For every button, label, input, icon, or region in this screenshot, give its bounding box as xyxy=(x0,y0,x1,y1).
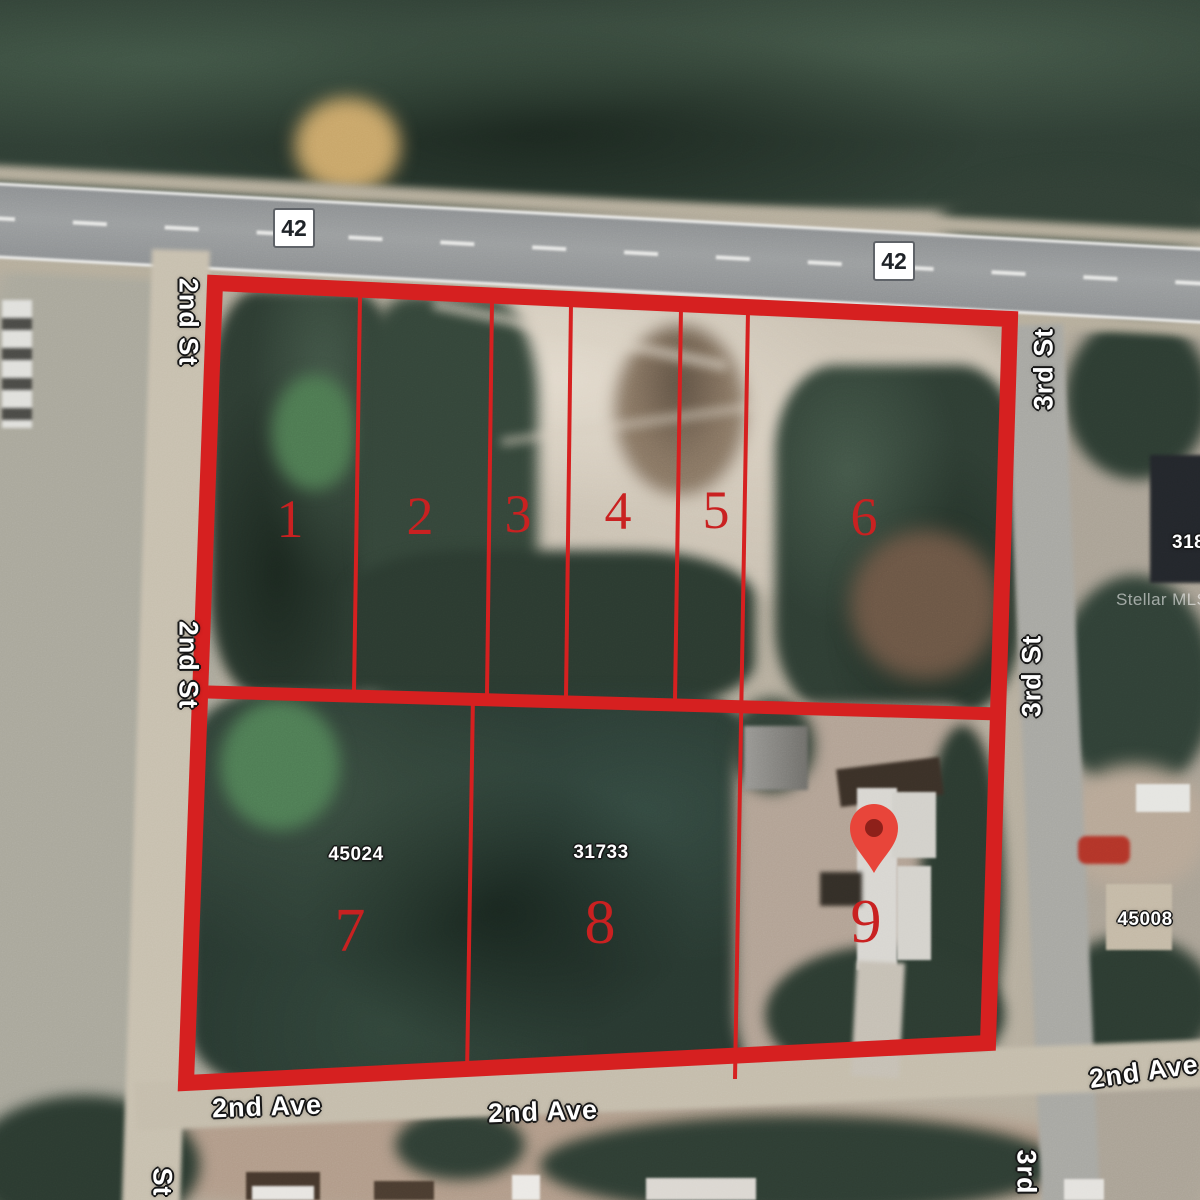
street-label-3rd-partial: 3rd xyxy=(1011,1149,1042,1194)
lot-number-6: 6 xyxy=(851,490,878,544)
terrain-layer xyxy=(0,0,1200,1200)
terrain-green-lot1 xyxy=(272,375,357,490)
parcel-number-45024: 45024 xyxy=(328,844,383,866)
lot-number-7: 7 xyxy=(335,900,366,962)
terrain-brown-lot6 xyxy=(850,530,1000,680)
highway-42-badge: 42 xyxy=(273,208,315,248)
building-house-wing xyxy=(892,792,936,858)
street-label-st-partial: St xyxy=(147,1168,178,1197)
building-dark-right xyxy=(1150,455,1200,583)
red-car xyxy=(1078,836,1130,864)
building-shed-lot9 xyxy=(744,726,808,790)
street-label-2nd-st-top: 2nd St xyxy=(173,278,204,367)
building-bottom-5 xyxy=(1064,1179,1104,1200)
terrain-sand-notch xyxy=(295,98,400,193)
building-bottom-1 xyxy=(252,1186,314,1200)
lot-number-4: 4 xyxy=(605,484,632,538)
terrain-green-lot7 xyxy=(220,700,340,830)
street-label-3rd-st-mid: 3rd St xyxy=(1017,635,1048,718)
lot-number-5: 5 xyxy=(703,483,730,537)
parcel-number-31733: 31733 xyxy=(573,842,628,864)
street-label-3rd-st-top: 3rd St xyxy=(1029,328,1060,411)
building-house-lower xyxy=(897,866,931,960)
highway-42-badge: 42 xyxy=(873,241,915,281)
lot-number-9: 9 xyxy=(851,891,882,953)
parcel-number-45008: 45008 xyxy=(1117,909,1172,931)
stellar-mls-watermark: Stellar MLS xyxy=(1116,590,1200,610)
parcel-number-318-partial: 318 xyxy=(1172,532,1200,554)
driveway-lot9 xyxy=(851,961,905,1078)
building-bottom-4 xyxy=(646,1178,756,1200)
lot-number-3: 3 xyxy=(505,487,532,541)
watermark-text: Stellar MLS xyxy=(1116,590,1200,610)
building-left-trailer xyxy=(2,300,32,428)
terrain-trees-toprow-south xyxy=(345,550,755,710)
street-label-2nd-ave-mid: 2nd Ave xyxy=(487,1095,598,1130)
street-label-2nd-ave-left: 2nd Ave xyxy=(211,1090,322,1125)
lot-number-2: 2 xyxy=(407,489,434,543)
lot-number-8: 8 xyxy=(585,892,616,954)
building-bottom-2 xyxy=(374,1181,434,1200)
building-bottom-3 xyxy=(512,1175,540,1200)
street-label-2nd-st-mid: 2nd St xyxy=(173,621,204,710)
highway-badge-label: 42 xyxy=(281,215,307,242)
satellite-map: 42 42 2nd St 2nd St 3rd St 3rd St St 3rd… xyxy=(0,0,1200,1200)
lot-number-1: 1 xyxy=(277,492,304,546)
building-right-trailer xyxy=(1136,784,1190,812)
highway-badge-label: 42 xyxy=(881,248,907,275)
